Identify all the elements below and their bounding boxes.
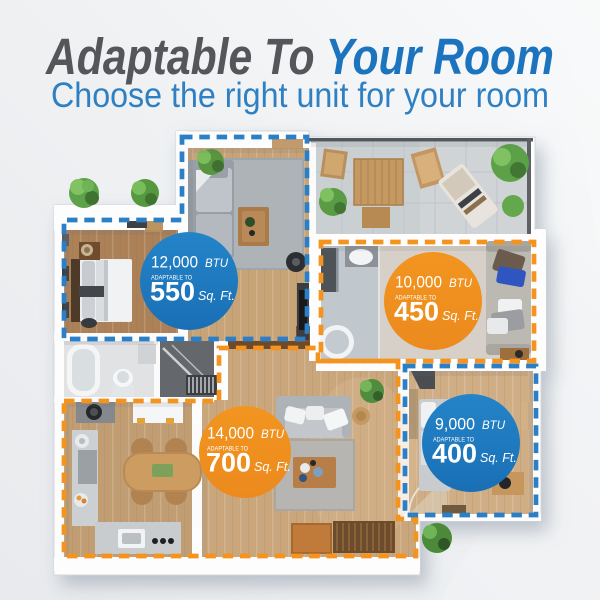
- svg-text:Choose the right unit for your: Choose the right unit for your room: [51, 76, 549, 115]
- svg-text:550: 550: [150, 277, 195, 307]
- svg-text:Sq. Ft.: Sq. Ft.: [480, 451, 517, 465]
- svg-text:Sq. Ft.: Sq. Ft.: [198, 289, 235, 303]
- svg-text:400: 400: [432, 439, 477, 469]
- svg-text:700: 700: [206, 448, 251, 478]
- svg-text:BTU: BTU: [205, 258, 229, 270]
- svg-text:Sq. Ft.: Sq. Ft.: [442, 309, 479, 323]
- svg-text:BTU: BTU: [482, 420, 506, 432]
- svg-text:10,000: 10,000: [395, 273, 442, 292]
- svg-text:Sq. Ft.: Sq. Ft.: [254, 460, 291, 474]
- svg-text:9,000: 9,000: [435, 415, 475, 434]
- svg-text:450: 450: [394, 297, 439, 327]
- svg-text:14,000: 14,000: [207, 424, 254, 443]
- svg-text:BTU: BTU: [449, 278, 473, 290]
- svg-text:BTU: BTU: [261, 429, 285, 441]
- svg-text:12,000: 12,000: [151, 253, 198, 272]
